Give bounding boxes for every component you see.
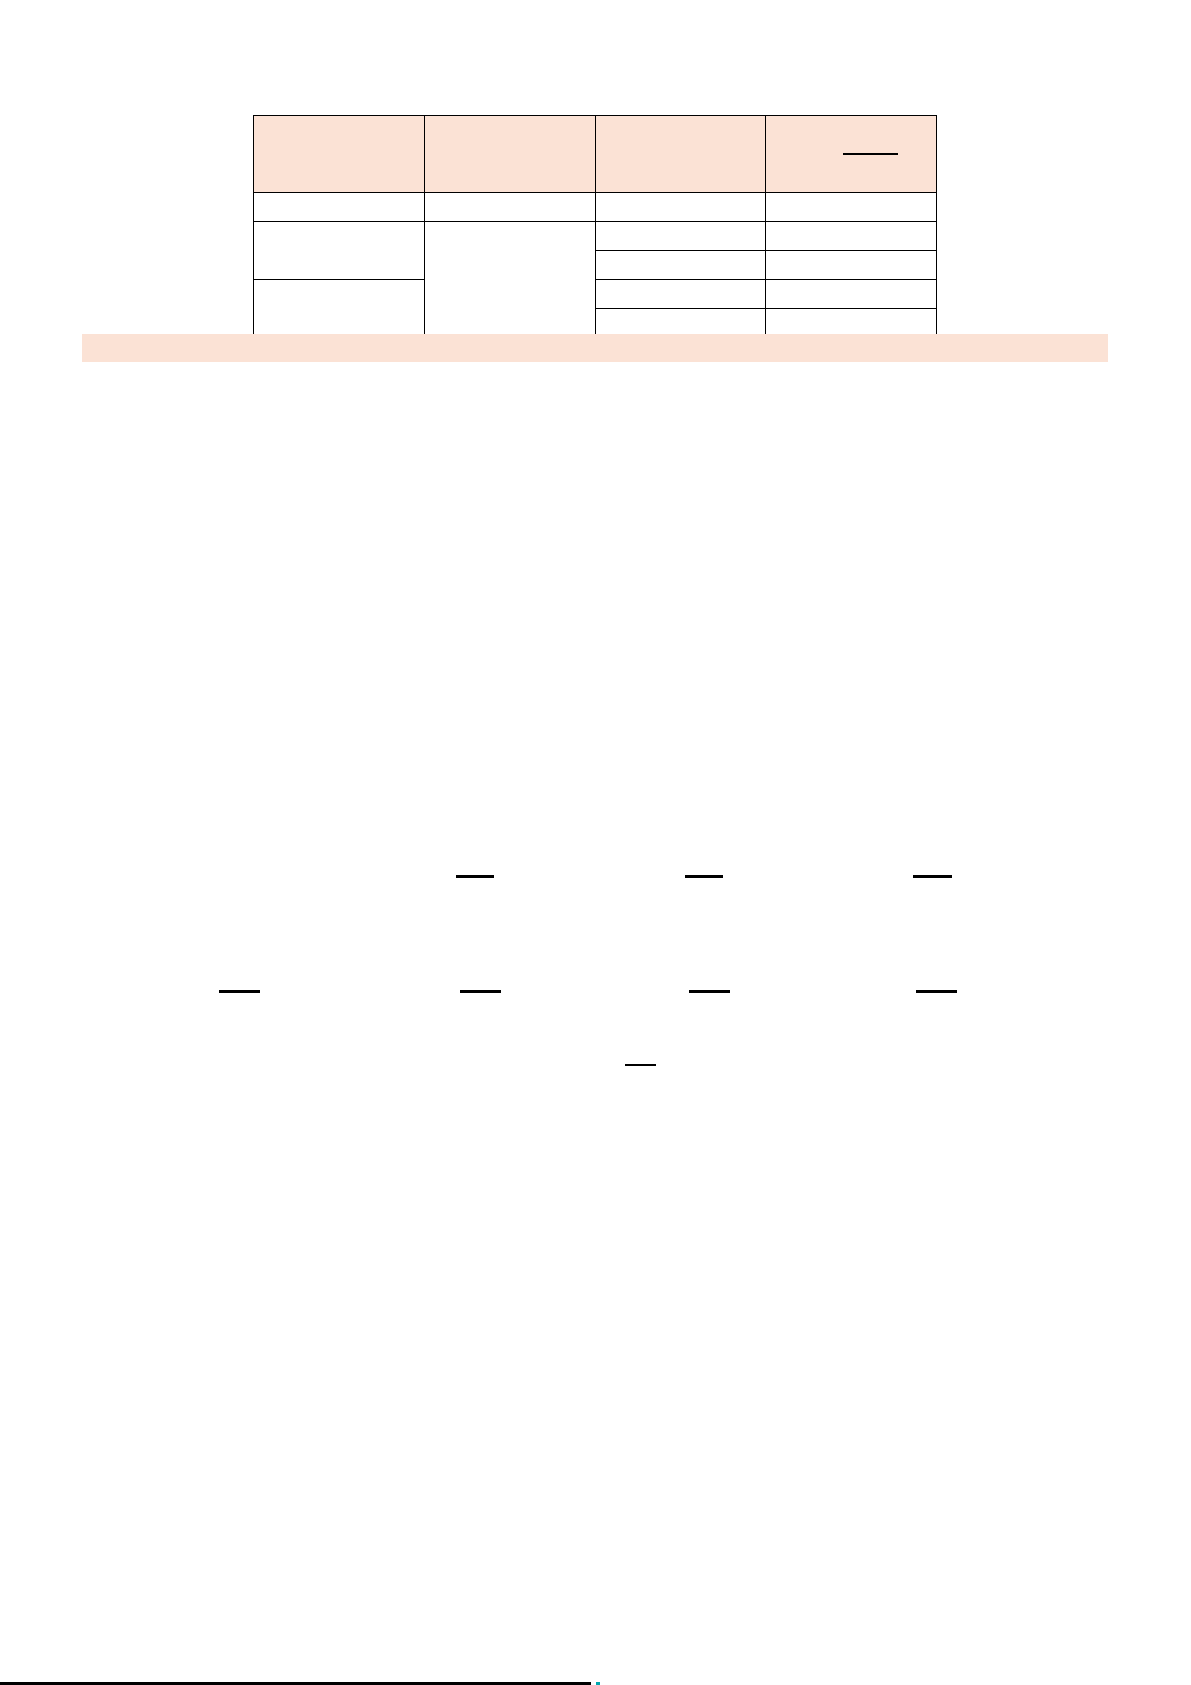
table-cell-merged bbox=[424, 222, 595, 338]
table-cell bbox=[766, 193, 937, 222]
table-cell bbox=[766, 251, 937, 280]
table-cell bbox=[424, 193, 595, 222]
blank-underline bbox=[916, 990, 957, 993]
table-cell bbox=[595, 251, 766, 280]
blank-underline bbox=[685, 875, 723, 878]
table-cell bbox=[595, 280, 766, 309]
document-page bbox=[0, 0, 1191, 1685]
blank-underline bbox=[456, 875, 494, 878]
table-row bbox=[254, 222, 937, 251]
table-cell bbox=[766, 280, 937, 309]
blank-underline bbox=[219, 990, 260, 993]
blank-underline-short bbox=[625, 1064, 656, 1066]
table-cell bbox=[595, 193, 766, 222]
table-header-cell-4 bbox=[766, 116, 937, 193]
table-header-cell-3 bbox=[595, 116, 766, 193]
table-header-row bbox=[254, 116, 937, 193]
blank-underline bbox=[913, 875, 952, 878]
data-table bbox=[253, 115, 937, 338]
table-header-cell-1 bbox=[254, 116, 425, 193]
table-cell-merged bbox=[254, 222, 425, 280]
highlight-band bbox=[82, 334, 1108, 362]
footer-divider-line bbox=[0, 1682, 591, 1685]
table-cell bbox=[595, 222, 766, 251]
table-cell bbox=[766, 222, 937, 251]
table-header-cell-2 bbox=[424, 116, 595, 193]
table-row bbox=[254, 193, 937, 222]
table-cell bbox=[254, 193, 425, 222]
blank-underline bbox=[689, 990, 730, 993]
table-row bbox=[254, 280, 937, 309]
blank-underline bbox=[460, 990, 501, 993]
header-blank-underline bbox=[843, 153, 898, 155]
table-cell-merged bbox=[254, 280, 425, 338]
